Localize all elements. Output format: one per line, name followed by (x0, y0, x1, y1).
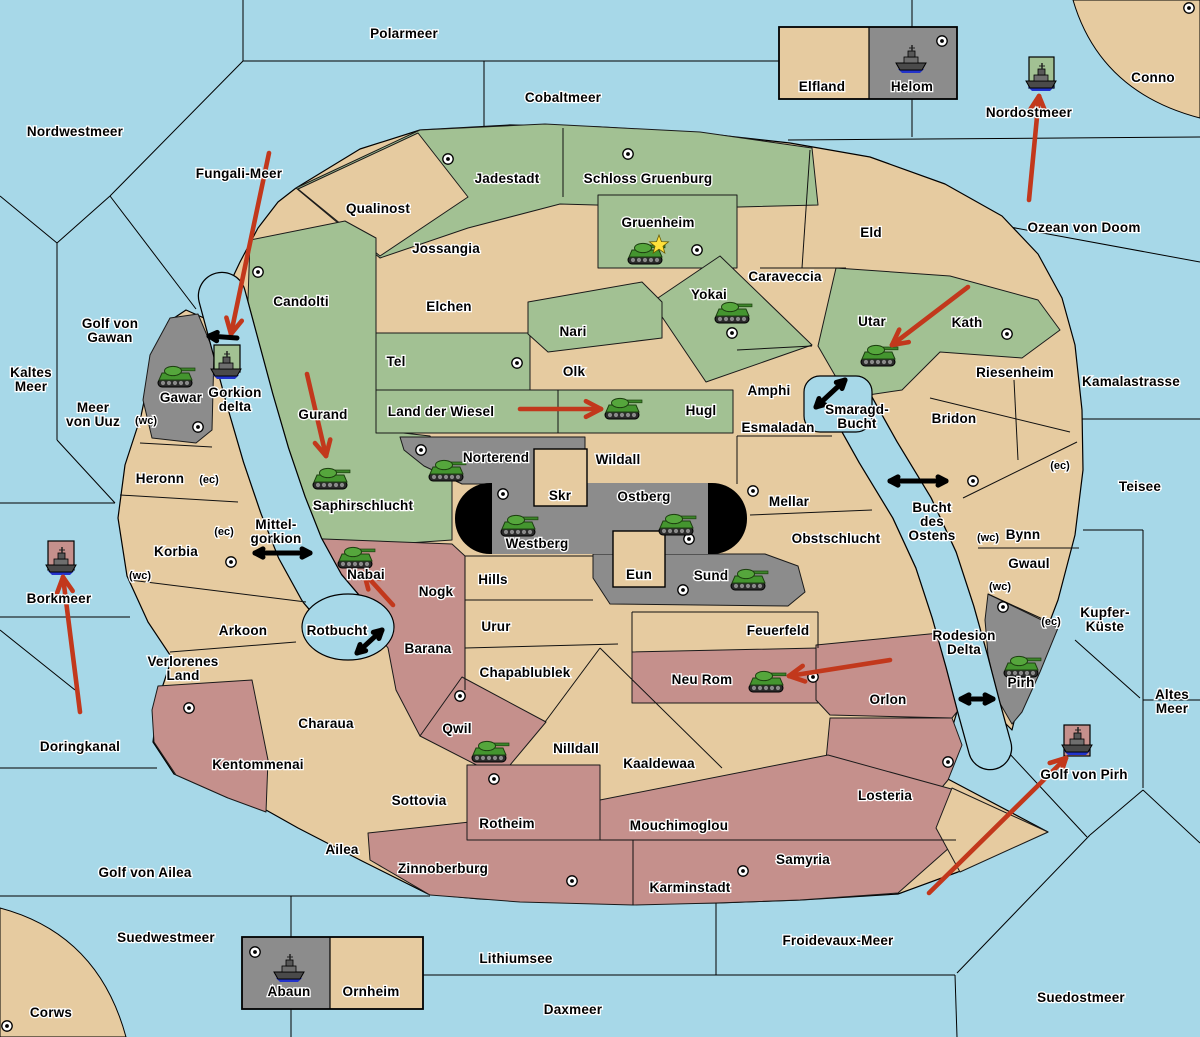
supply-center-dot (1184, 3, 1194, 13)
region-label-helom: Helom (891, 79, 933, 94)
region-label-arkoon: Arkoon (219, 623, 267, 638)
coast-tag: (ec) (199, 474, 219, 486)
region-label-mouchimoglou: Mouchimoglou (630, 818, 728, 833)
region-label-caraveccia: Caraveccia (748, 269, 822, 284)
supply-center-dot (184, 703, 194, 713)
supply-center-dot (937, 36, 947, 46)
region-label-charaua: Charaua (298, 716, 354, 731)
supply-center-dot (2, 1021, 12, 1031)
region-label-chapablublek: Chapablublek (480, 665, 571, 680)
sea-label-golf-von-gawan: Golf von (82, 316, 138, 331)
region-label-gruenheim: Gruenheim (621, 215, 694, 230)
region-label-feuerfeld: Feuerfeld (747, 623, 810, 638)
region-label-kaaldewaa: Kaaldewaa (623, 756, 695, 771)
sea-label-fungali-meer: Fungali-Meer (196, 166, 283, 181)
sea-label-borkmeer: Borkmeer (27, 591, 92, 606)
region-label-land-der-wiesel: Land der Wiesel (388, 404, 494, 419)
supply-center-dot (623, 149, 633, 159)
region-label-hills: Hills (478, 572, 508, 587)
sea-label-kamalastrasse: Kamalastrasse (1082, 374, 1180, 389)
region-label-nari: Nari (559, 324, 586, 339)
region-label-abaun: Abaun (268, 984, 311, 999)
region-label-urur: Urur (481, 619, 511, 634)
sea-label-golf-von-ailea: Golf von Ailea (98, 865, 191, 880)
region-label-zinnoberburg: Zinnoberburg (398, 861, 488, 876)
sea-label-doringkanal: Doringkanal (40, 739, 120, 754)
sea-label-bucht-des-ostens: Bucht (912, 500, 952, 515)
coast-tag: (wc) (977, 532, 999, 544)
sea-label-kupfer-k-ste: Kupfer- (1080, 605, 1129, 620)
supply-center-dot (1002, 329, 1012, 339)
game-map-stage: (wc)(ec)(ec)(wc)(ec)(wc)(wc)(ec)Polarmee… (0, 0, 1200, 1037)
supply-center-dot (738, 866, 748, 876)
sea-label-rotbucht: Rotbucht (307, 623, 368, 638)
region-label-yokai: Yokai (691, 287, 727, 302)
region-label-orlon: Orlon (870, 692, 907, 707)
region-label-wildall: Wildall (596, 452, 641, 467)
supply-center-dot (498, 489, 508, 499)
coast-tag: (wc) (129, 570, 151, 582)
region-label-ostberg: Ostberg (617, 489, 670, 504)
coast-tag: (ec) (1041, 616, 1061, 628)
supply-center-dot (748, 486, 758, 496)
region-label-esmaladan: Esmaladan (741, 420, 814, 435)
region-label-hugl: Hugl (686, 403, 717, 418)
sea-label-golf-von-pirh: Golf von Pirh (1040, 767, 1127, 782)
coast-tag: (ec) (214, 526, 234, 538)
region-label-heronn: Heronn (136, 471, 184, 486)
sea-label-smaragd-bucht: Smaragd- (825, 402, 889, 417)
region-label-ailea: Ailea (325, 842, 359, 857)
region-label-losteria: Losteria (858, 788, 912, 803)
region-label-samyria: Samyria (776, 852, 830, 867)
region-label-bynn: Bynn (1006, 527, 1041, 542)
region-label-neu-rom: Neu Rom (672, 672, 733, 687)
region-label-tel: Tel (386, 354, 405, 369)
region-label-norterend: Norterend (463, 450, 529, 465)
region-label-schloss-gruenburg: Schloss Gruenburg (584, 171, 713, 186)
sea-label-nordostmeer: Nordostmeer (986, 105, 1073, 120)
coast-tag: (ec) (1050, 460, 1070, 472)
sea-label-mittelgorkion: gorkion (251, 531, 302, 546)
supply-center-dot (416, 445, 426, 455)
region-label-westberg: Westberg (506, 536, 569, 551)
region-label-skr: Skr (549, 488, 572, 503)
region-label-gawar: Gawar (160, 390, 203, 405)
region-label-eld: Eld (860, 225, 882, 240)
sea-label-kaltes-meer: Meer (15, 379, 48, 394)
region-label-sottovia: Sottovia (392, 793, 447, 808)
region-label-pirh: Pirh (1007, 675, 1034, 690)
region-label-obstschlucht: Obstschlucht (792, 531, 881, 546)
supply-center-dot (998, 602, 1008, 612)
region-label-kentommenai: Kentommenai (212, 757, 303, 772)
region-label-karminstadt: Karminstadt (650, 880, 731, 895)
sea-label-suedwestmeer: Suedwestmeer (117, 930, 215, 945)
region-label-barana: Barana (405, 641, 452, 656)
region-label-kath: Kath (952, 315, 983, 330)
supply-center-dot (489, 774, 499, 784)
sea-label-mittelgorkion: Mittel- (255, 517, 296, 532)
region-label-candolti: Candolti (273, 294, 329, 309)
supply-center-dot (443, 154, 453, 164)
supply-center-dot (226, 557, 236, 567)
sea-label-bucht-des-ostens: Ostens (909, 528, 956, 543)
region-label-qualinost: Qualinost (346, 201, 410, 216)
region-label-bridon: Bridon (932, 411, 977, 426)
region-label-nabai: Nabai (347, 567, 385, 582)
sea-label-altes-meer: Altes (1155, 687, 1189, 702)
supply-center-dot (692, 245, 702, 255)
region-label-verlorenes-land: Verlorenes (147, 654, 218, 669)
sea-label-corws: Corws (30, 1005, 72, 1020)
region-label-eun: Eun (626, 567, 652, 582)
sea-label-meer-von-uuz: Meer (77, 400, 110, 415)
sea-label-nordwestmeer: Nordwestmeer (27, 124, 124, 139)
region-label-ornheim: Ornheim (343, 984, 400, 999)
region-label-gwaul: Gwaul (1008, 556, 1050, 571)
sea-label-daxmeer: Daxmeer (544, 1002, 603, 1017)
region-label-olk: Olk (563, 364, 586, 379)
supply-center-dot (943, 757, 953, 767)
coast-tag: (wc) (989, 581, 1011, 593)
region-label-gorkion-delta: Gorkion (208, 385, 261, 400)
region-label-amphi: Amphi (748, 383, 791, 398)
sea-label-altes-meer: Meer (1156, 701, 1189, 716)
supply-center-dot (968, 476, 978, 486)
supply-center-dot (253, 267, 263, 277)
region-label-verlorenes-land: Land (166, 668, 199, 683)
sea-label-kaltes-meer: Kaltes (10, 365, 52, 380)
region-label-gorkion-delta: delta (219, 399, 252, 414)
supply-center-dot (455, 691, 465, 701)
sea-label-teisee: Teisee (1119, 479, 1162, 494)
region-label-jossangia: Jossangia (412, 241, 480, 256)
sea-label-smaragd-bucht: Bucht (837, 416, 877, 431)
sea-label-golf-von-gawan: Gawan (87, 330, 132, 345)
region-label-mellar: Mellar (769, 494, 810, 509)
coast-tag: (wc) (135, 415, 157, 427)
supply-center-dot (512, 358, 522, 368)
sea-label-conno: Conno (1131, 70, 1175, 85)
sea-label-rodesion-delta: Rodesion (932, 628, 995, 643)
sea-label-kupfer-k-ste: Küste (1086, 619, 1125, 634)
supply-center-dot (678, 585, 688, 595)
region-label-elchen: Elchen (426, 299, 471, 314)
map-canvas: (wc)(ec)(ec)(wc)(ec)(wc)(wc)(ec)Polarmee… (0, 0, 1200, 1037)
region-label-qwil: Qwil (442, 721, 471, 736)
region-label-korbia: Korbia (154, 544, 198, 559)
sea-label-cobaltmeer: Cobaltmeer (525, 90, 602, 105)
region-label-sund: Sund (694, 568, 729, 583)
sea-label-rodesion-delta: Delta (947, 642, 981, 657)
region-area-gruenheim-box[interactable] (598, 195, 737, 268)
supply-center-dot (250, 947, 260, 957)
region-label-nilldall: Nilldall (553, 741, 599, 756)
supply-center-dot (567, 876, 577, 886)
sea-label-polarmeer: Polarmeer (370, 26, 438, 41)
supply-center-dot (727, 328, 737, 338)
sea-label-bucht-des-ostens: des (920, 514, 944, 529)
region-label-saphirschlucht: Saphirschlucht (313, 498, 414, 513)
sea-label-suedostmeer: Suedostmeer (1037, 990, 1125, 1005)
supply-center-dot (193, 422, 203, 432)
region-label-gurand: Gurand (298, 407, 347, 422)
sea-label-ozean-von-doom: Ozean von Doom (1027, 220, 1140, 235)
region-label-riesenheim: Riesenheim (976, 365, 1054, 380)
region-label-rotheim: Rotheim (479, 816, 534, 831)
sea-label-meer-von-uuz: von Uuz (66, 414, 120, 429)
sea-label-froidevaux-meer: Froidevaux-Meer (782, 933, 894, 948)
region-label-nogk: Nogk (419, 584, 454, 599)
sea-label-lithiumsee: Lithiumsee (479, 951, 553, 966)
region-label-jadestadt: Jadestadt (475, 171, 540, 186)
region-label-elfland: Elfland (799, 79, 845, 94)
region-label-utar: Utar (858, 314, 886, 329)
